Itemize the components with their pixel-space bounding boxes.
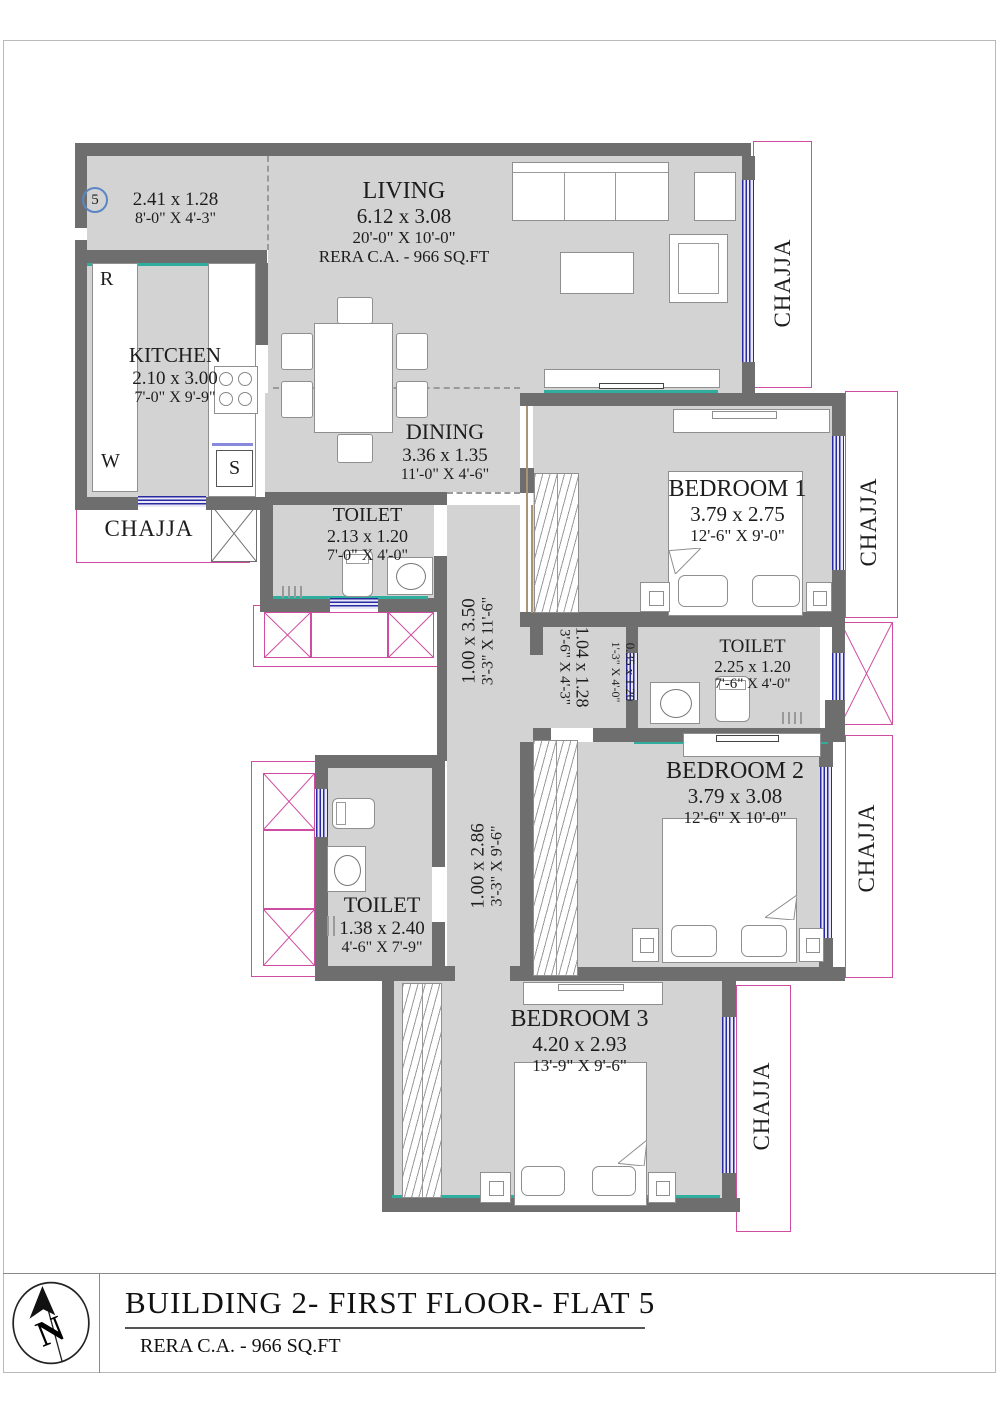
wall — [254, 263, 268, 345]
room-name: BEDROOM 3 — [502, 1006, 657, 1033]
room-name: BEDROOM 1 — [650, 476, 825, 503]
room-dim-ft: 12'-6" X 9'-0" — [650, 526, 825, 545]
room-name: BEDROOM 2 — [650, 758, 820, 785]
niche-dim-ft: 1'-3" X 4'-0" — [609, 642, 622, 703]
room-dim-m: 2.10 x 3.00 — [120, 368, 230, 389]
lintel-line — [544, 390, 718, 393]
window — [316, 789, 328, 837]
title-underline — [125, 1327, 645, 1329]
wardrobe-bedroom3 — [402, 983, 442, 1198]
window — [330, 598, 378, 609]
living-rera: RERA C.A. - 966 SQ.FT — [314, 247, 494, 266]
wall — [593, 728, 626, 742]
room-dim-m: 2.25 x 1.20 — [690, 657, 815, 676]
living-label: LIVING 6.12 x 3.08 20'-0" X 10'-0" RERA … — [314, 178, 494, 266]
wall — [742, 156, 755, 180]
room-dim-ft: 20'-0" X 10'-0" — [314, 228, 494, 247]
toilet3-label: TOILET 1.38 x 2.40 4'-6" X 7'-9" — [322, 893, 442, 957]
wardrobe-bedroom2 — [533, 740, 578, 976]
sink-label: S — [229, 457, 240, 479]
bedroom1-label: BEDROOM 1 3.79 x 2.75 12'-6" X 9'-0" — [650, 476, 825, 545]
duct-x — [263, 773, 315, 830]
pillow — [741, 925, 787, 957]
kitchen-sink: S — [216, 450, 253, 487]
room-dim-ft: 4'-6" X 7'-9" — [322, 939, 442, 957]
passage2-label: 1.00 x 2.86 3'-3" X 9'-6" — [467, 823, 506, 909]
burner — [238, 372, 252, 386]
wall — [832, 622, 845, 653]
window — [832, 436, 844, 570]
blanket-fold — [669, 548, 701, 574]
coffee-table — [560, 252, 634, 294]
wall — [315, 966, 445, 981]
blanket-fold — [618, 1140, 647, 1166]
dining-label: DINING 3.36 x 1.35 11'-0" X 4'-6" — [385, 420, 505, 484]
room-dim-ft: 7'-6" X 4'-0" — [690, 676, 815, 693]
floor-plan-sheet: S R W — [0, 0, 1000, 1415]
wall — [260, 598, 330, 612]
room-dim-m: 3.79 x 3.08 — [650, 785, 820, 809]
passage-dim-ft: 3'-3" X 9'-6" — [489, 823, 507, 909]
door-step-marks — [782, 712, 804, 724]
room-name: DINING — [385, 420, 505, 445]
pillow — [752, 575, 800, 607]
wc — [332, 798, 375, 829]
toilet1-label: TOILET 2.13 x 1.20 7'-0" X 4'-0" — [295, 504, 440, 564]
window — [138, 496, 206, 507]
wall — [260, 505, 273, 612]
duct-kitchen — [211, 505, 257, 562]
chajja-label: CHAJJA — [856, 477, 882, 566]
room-dim-m: 3.79 x 2.75 — [650, 503, 825, 527]
wall — [520, 742, 533, 981]
wardrobe-bedroom1 — [534, 473, 579, 613]
divider-dashed — [447, 492, 520, 494]
door-step-marks — [282, 586, 306, 598]
dining-chair — [281, 333, 313, 370]
kitchen-label: KITCHEN 2.10 x 3.00 7'-0" X 9'-9" — [120, 344, 230, 407]
room-dim-m: 2.13 x 1.20 — [295, 526, 440, 546]
burner — [238, 392, 252, 406]
pillow — [678, 575, 728, 607]
washbasin — [327, 846, 366, 892]
bedroom3-label: BEDROOM 3 4.20 x 2.93 13'-9" X 9'-6" — [502, 1006, 657, 1075]
wall — [626, 700, 638, 728]
sheet-subtitle: RERA C.A. - 966 SQ.FT — [140, 1335, 341, 1358]
passage-dim-m: 1.00 x 3.50 — [458, 597, 479, 685]
wall — [510, 966, 533, 981]
wall — [87, 250, 267, 263]
passage1-label: 1.00 x 3.50 3'-3" X 11'-6" — [458, 597, 497, 685]
dining-chair — [396, 381, 428, 418]
wall — [825, 700, 845, 728]
dining-table — [314, 323, 393, 433]
nightstand — [648, 1172, 676, 1203]
wall — [832, 570, 845, 612]
refrigerator-label: R — [100, 268, 113, 290]
room-dim-ft: 13'-9" X 9'-6" — [502, 1056, 657, 1075]
chajja-label: CHAJJA — [84, 516, 214, 542]
nightstand — [480, 1172, 511, 1203]
wall — [75, 497, 138, 510]
wall — [75, 143, 751, 156]
service-ledge — [212, 443, 253, 446]
armchair — [669, 234, 728, 303]
chajja-label: CHAJJA — [749, 1061, 775, 1150]
room-dim-m: 6.12 x 3.08 — [314, 205, 494, 229]
sheet-title: BUILDING 2- FIRST FLOOR- FLAT 5 — [125, 1285, 655, 1321]
wall — [832, 406, 845, 436]
nightstand — [799, 928, 824, 962]
room-dim-ft: 7'-0" X 4'-0" — [295, 547, 440, 565]
tv — [599, 383, 664, 389]
sofa — [512, 162, 669, 221]
divider-dashed — [267, 156, 269, 250]
side-seat — [694, 172, 736, 221]
foyer-label: 2.41 x 1.28 8'-0" X 4'-3" — [118, 189, 233, 228]
passage-dim-ft: 3'-3" X 11'-6" — [480, 597, 498, 685]
wall — [75, 240, 87, 510]
room-dim-ft: 11'-0" X 4'-6" — [385, 466, 505, 484]
room-dim-m: 1.38 x 2.40 — [322, 918, 442, 939]
wall — [819, 742, 833, 767]
passage-dim-m: 1.00 x 2.86 — [467, 823, 488, 909]
title-block-divider — [99, 1273, 100, 1373]
room-dim-ft: 7'-0" X 9'-9" — [120, 389, 230, 407]
lobby-label: 1.04 x 1.28 3'-6" X 4'-3" — [556, 627, 593, 708]
wall-opening-line — [526, 406, 528, 612]
duct-x — [264, 612, 311, 658]
room-dim-m: 4.20 x 2.93 — [502, 1033, 657, 1057]
wall-opening-line — [531, 505, 533, 613]
nightstand — [640, 582, 670, 612]
flat-number-marker: 5 — [82, 187, 108, 213]
wall — [382, 981, 394, 1212]
window — [820, 767, 832, 938]
wall — [437, 612, 447, 761]
flat-number: 5 — [91, 192, 99, 208]
room-dim-ft: 12'-6" X 10'-0" — [650, 808, 820, 827]
nightstand — [632, 928, 659, 962]
room-name: KITCHEN — [120, 344, 230, 368]
blanket-fold — [765, 895, 797, 920]
duct-bedroom1 — [840, 622, 893, 725]
nightstand — [806, 582, 832, 612]
room-dim-m: 3.36 x 1.35 — [385, 445, 505, 466]
foyer-dim-m: 2.41 x 1.28 — [118, 189, 233, 210]
chajja-label: CHAJJA — [770, 238, 796, 327]
foyer-dim-ft: 8'-0" X 4'-3" — [118, 210, 233, 228]
room-name: TOILET — [690, 636, 815, 657]
lobby-dim-m: 1.04 x 1.28 — [572, 627, 592, 708]
wall — [742, 362, 755, 395]
duct-x — [388, 612, 434, 658]
wall — [432, 755, 445, 867]
pillow — [592, 1166, 636, 1196]
room-name: TOILET — [322, 893, 442, 918]
dining-chair — [337, 434, 373, 463]
wall — [520, 393, 845, 406]
dresser-item — [712, 411, 777, 419]
duct-x — [263, 909, 315, 966]
dresser-item — [558, 984, 624, 991]
pillow — [521, 1166, 565, 1196]
lobby-dim-ft: 3'-6" X 4'-3" — [556, 627, 573, 708]
tv — [716, 735, 779, 742]
room-name: LIVING — [314, 178, 494, 205]
dining-chair — [396, 333, 428, 370]
dining-chair — [337, 297, 373, 324]
wall — [722, 981, 736, 1017]
wall — [315, 755, 445, 768]
window — [722, 1017, 735, 1173]
wall — [445, 966, 455, 981]
wash-area-label: W — [101, 450, 120, 472]
wall — [530, 627, 543, 655]
room-name: TOILET — [295, 504, 440, 526]
niche-label: 0.35 x 1.20 1'-3" X 4'-0" — [609, 642, 637, 703]
duct-plain — [263, 830, 315, 909]
pillow — [671, 925, 717, 957]
window — [832, 653, 845, 700]
duct-plain — [311, 612, 388, 658]
north-compass-icon: N — [8, 1280, 94, 1366]
wall — [315, 768, 328, 789]
toilet2-label: TOILET 2.25 x 1.20 7'-6" X 4'-0" — [690, 636, 815, 693]
dining-chair — [281, 381, 313, 418]
bedroom2-label: BEDROOM 2 3.79 x 3.08 12'-6" X 10'-0" — [650, 758, 820, 827]
niche-dim-m: 0.35 x 1.20 — [622, 642, 637, 703]
chajja-label: CHAJJA — [854, 803, 880, 892]
window — [742, 180, 754, 362]
